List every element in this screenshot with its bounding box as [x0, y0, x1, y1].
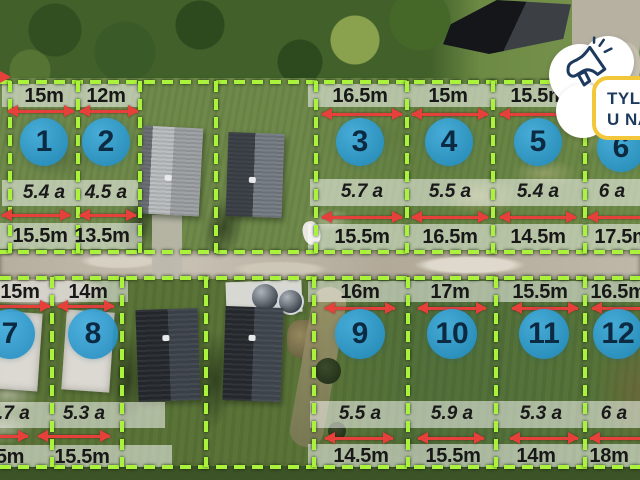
plot-boundary-line	[0, 276, 640, 280]
plot-top-dimension: 12m	[86, 85, 125, 108]
plot-area: 5.3 a	[520, 403, 562, 425]
dimension-arrow	[80, 110, 138, 113]
dimension-arrow	[80, 214, 136, 217]
plot-bottom-dimension: 14m	[516, 445, 555, 468]
plot-boundary-line	[406, 277, 410, 467]
plot-bottom-dimension: 16.5m	[422, 226, 477, 249]
house-roof	[222, 306, 283, 402]
plot-number-badge: 3	[336, 118, 384, 166]
plot-area: 5.9 a	[431, 403, 473, 425]
plot-bottom-dimension: 13.5m	[74, 225, 129, 248]
megaphone-icon	[556, 34, 621, 99]
plot-number-badge: 11	[519, 309, 569, 359]
dimension-arrow	[325, 437, 393, 440]
plot-number-badge: 2	[82, 118, 130, 166]
plot-boundary-line	[0, 250, 640, 254]
dimension-arrow	[322, 216, 402, 219]
plot-number-badge: 10	[427, 309, 477, 359]
plot-number-badge: 8	[68, 309, 118, 359]
plot-top-dimension: 17m	[430, 281, 469, 304]
plot-area: 6 a	[601, 403, 627, 425]
house-roof	[135, 308, 200, 402]
plot-bottom-dimension: 18m	[589, 445, 628, 468]
bush	[315, 358, 341, 384]
house-roof	[139, 125, 204, 216]
plot-top-dimension: 15.5m	[512, 281, 567, 304]
plot-boundary-line	[312, 277, 316, 467]
plot-bottom-dimension: 15.5m	[334, 226, 389, 249]
gravel-road	[0, 251, 640, 279]
plot-area: 5.4 a	[23, 182, 65, 204]
plot-boundary-line	[314, 81, 318, 253]
plot-bottom-dimension: 14.5m	[333, 445, 388, 468]
dimension-arrow	[510, 437, 578, 440]
plot-top-dimension: 16m	[340, 281, 379, 304]
dimension-arrow	[322, 113, 402, 116]
promo-badge-line1: TYLKO	[607, 88, 640, 109]
dimension-arrow	[0, 435, 28, 438]
dimension-arrow	[588, 216, 640, 219]
plot-top-dimension: 15m	[0, 281, 39, 304]
plot-bottom-dimension: 5m	[0, 446, 24, 469]
dimension-arrow	[38, 435, 110, 438]
plot-number-badge: 12	[593, 309, 640, 359]
plot-boundary-line	[0, 80, 640, 84]
plot-boundary-line	[583, 277, 587, 467]
plot-number-badge: 1	[20, 118, 68, 166]
plot-number-badge: 5	[514, 118, 562, 166]
dimension-arrow	[418, 437, 484, 440]
plot-top-dimension: 14m	[68, 281, 107, 304]
dimension-arrow	[412, 216, 488, 219]
plot-number-badge: 9	[335, 309, 385, 359]
plot-area: 5.5 a	[339, 403, 381, 425]
plot-area: 5.7 a	[341, 181, 383, 203]
plot-bottom-dimension: 14.5m	[510, 226, 565, 249]
plot-area: 6 a	[599, 181, 625, 203]
driveway	[152, 215, 182, 279]
plot-area: 4.5 a	[85, 182, 127, 204]
plot-boundary-line	[405, 81, 409, 253]
plot-top-dimension: 15m	[428, 85, 467, 108]
plot-area: 5.5 a	[429, 181, 471, 203]
dimension-arrow	[500, 216, 576, 219]
plot-bottom-dimension: 15.5m	[12, 225, 67, 248]
aerial-plot-map: 15m 12m 16.5m 15m 15.5m 5.4 a 4.5 a 5.7 …	[0, 0, 640, 480]
plot-number-badge: 4	[425, 118, 473, 166]
plot-area: 5.3 a	[63, 403, 105, 425]
plot-boundary-line	[494, 277, 498, 467]
plot-boundary-line	[120, 277, 124, 467]
plot-bottom-dimension: 17.5m	[594, 226, 640, 249]
plot-top-dimension: 16.5m	[332, 85, 387, 108]
plot-bottom-dimension: 15.5m	[54, 446, 109, 469]
plot-top-dimension: 16.5m	[590, 281, 640, 304]
dimension-arrow	[412, 113, 488, 116]
plot-boundary-line	[214, 81, 218, 253]
house-roof	[226, 132, 285, 218]
dimension-arrow	[58, 305, 114, 308]
dimension-arrow	[590, 437, 640, 440]
dimension-arrow	[2, 214, 70, 217]
plot-boundary-line	[491, 81, 495, 253]
cut-arrow-fragment	[0, 71, 11, 83]
plot-bottom-dimension: 15.5m	[425, 445, 480, 468]
dimension-arrow	[0, 305, 50, 308]
plot-area: 5.4 a	[517, 181, 559, 203]
dimension-arrow	[8, 110, 74, 113]
plot-area: .7 a	[0, 403, 30, 425]
promo-badge-line2: U NAS	[607, 109, 640, 130]
plot-top-dimension: 15m	[24, 85, 63, 108]
plot-boundary-line	[204, 277, 208, 467]
